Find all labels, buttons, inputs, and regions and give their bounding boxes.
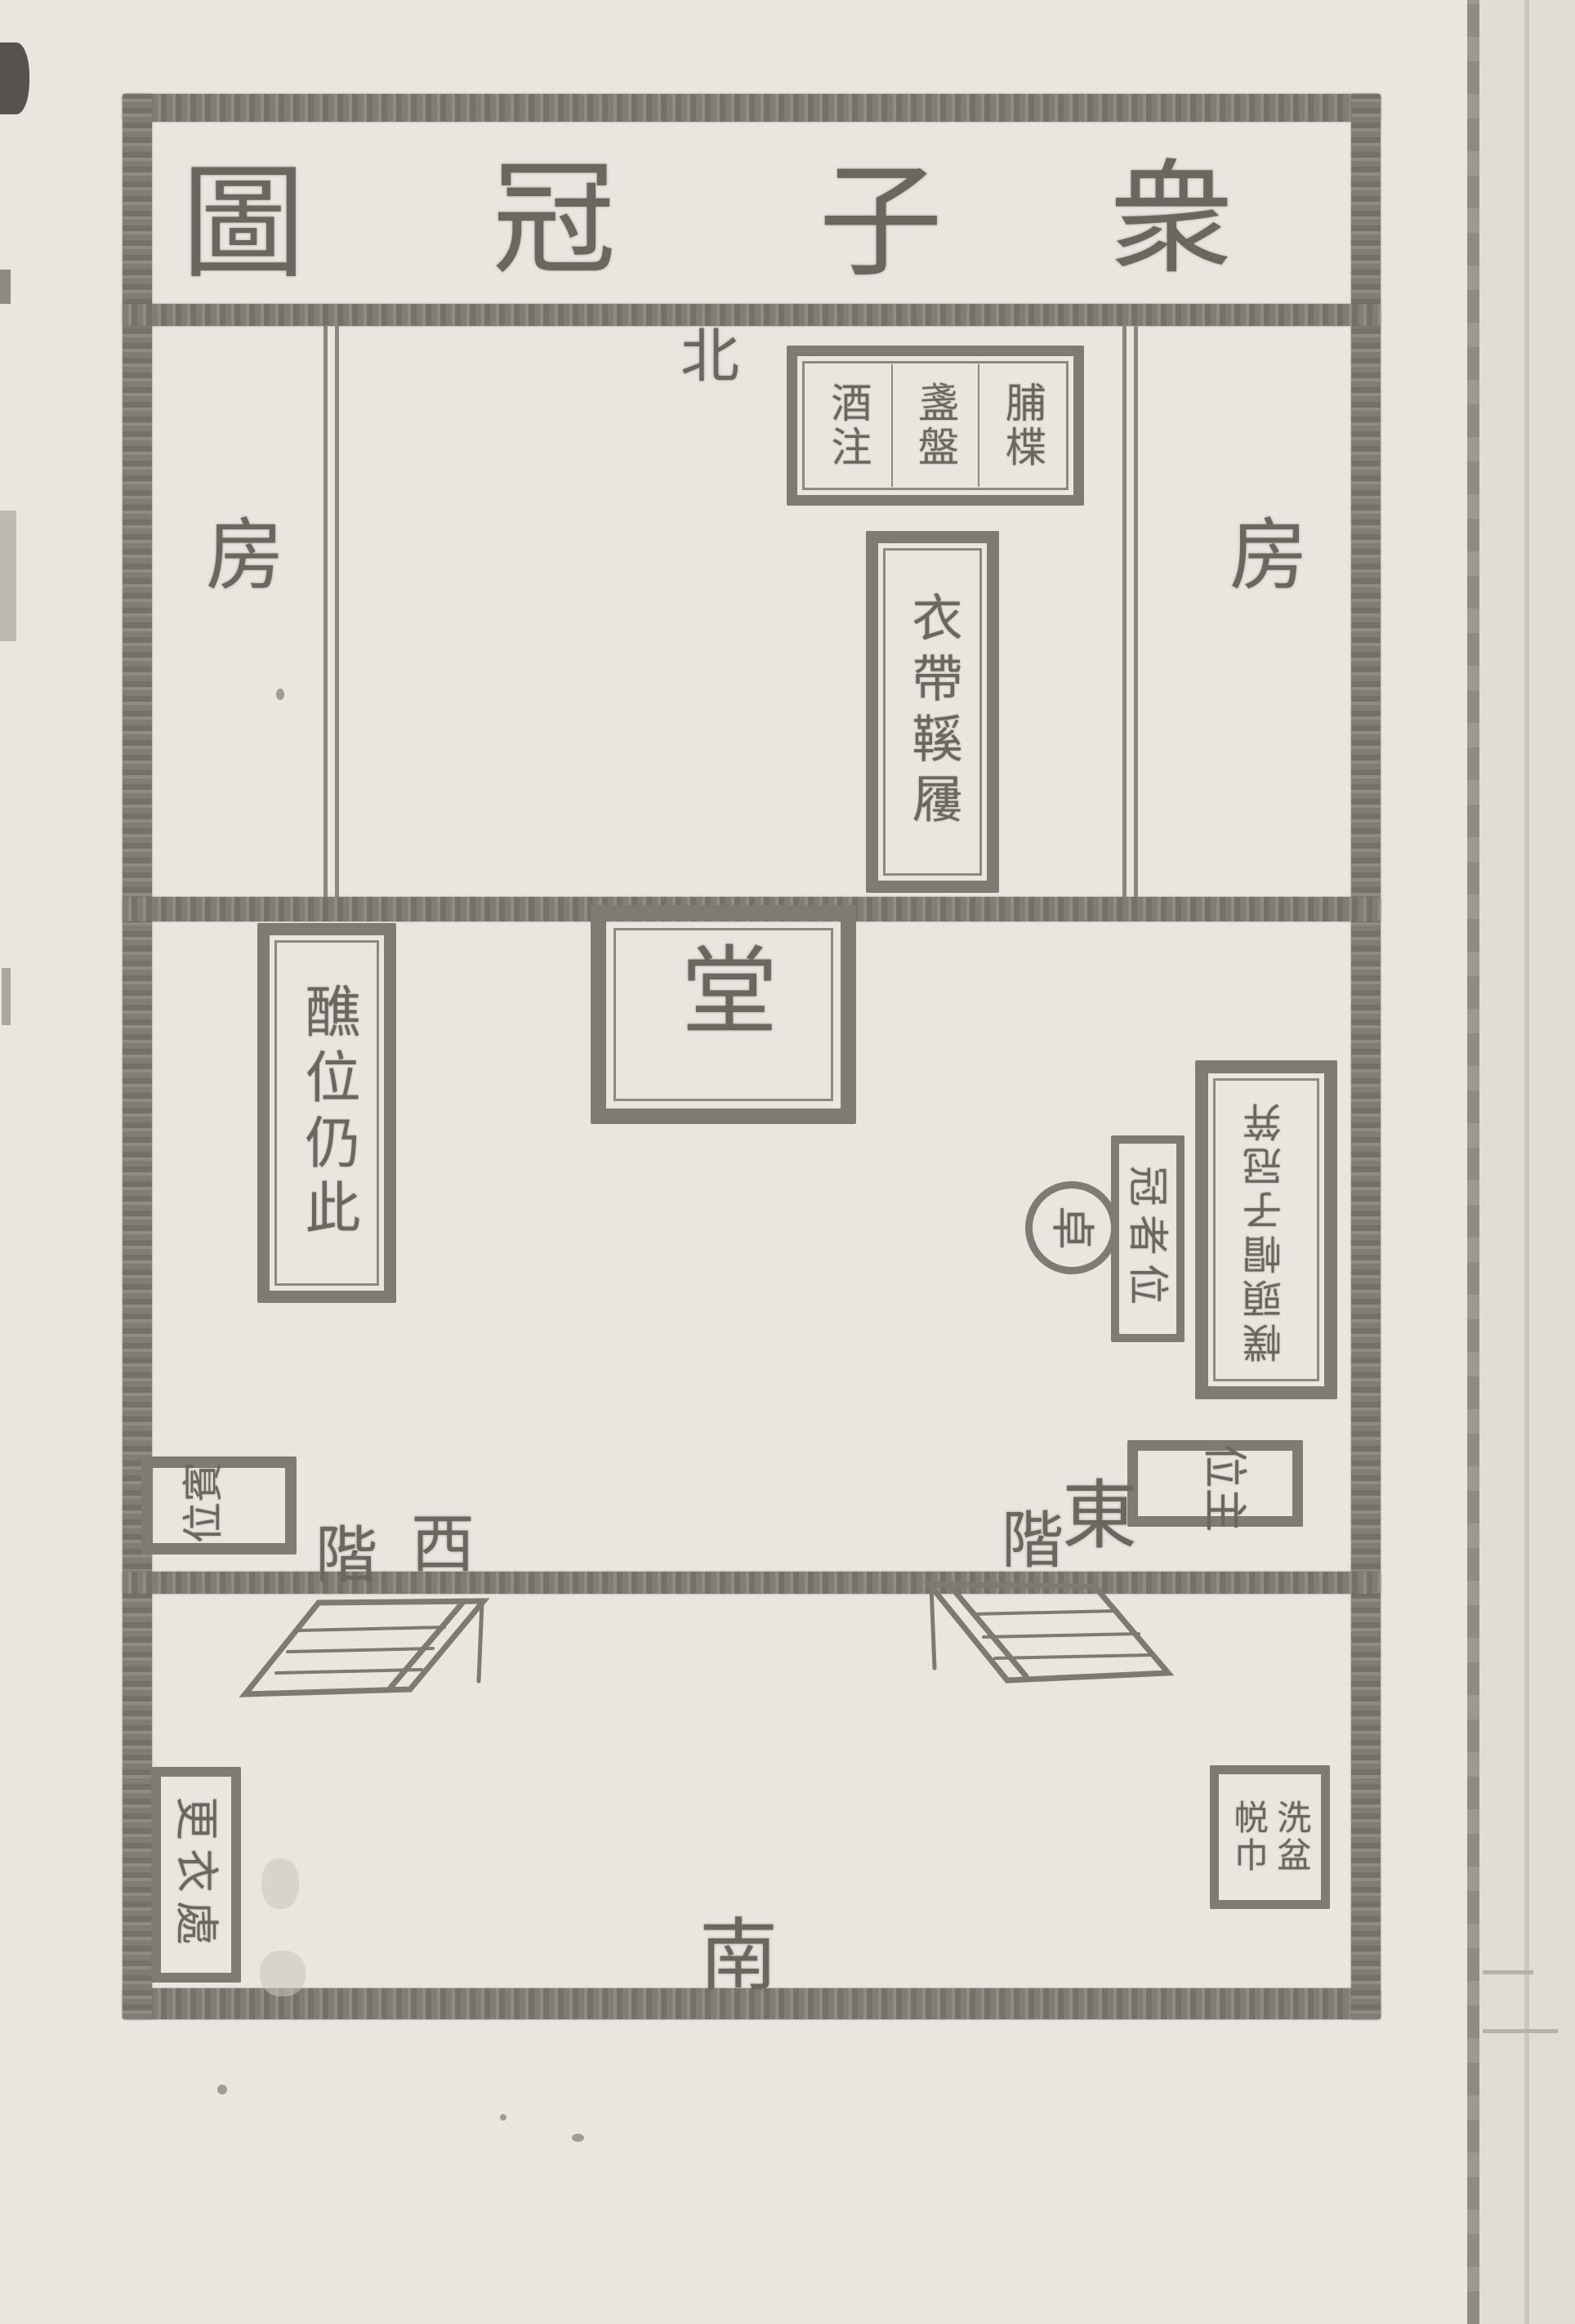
washing-col-shuijin: 帨巾 — [1227, 1782, 1270, 1892]
left-edge-mark-1 — [0, 270, 11, 304]
left-edge-mark-3 — [2, 968, 11, 1025]
page-edge-line — [1524, 0, 1529, 2324]
speck-4 — [276, 689, 284, 700]
left-edge-ink-blob — [0, 42, 29, 114]
left-edge-mark-2 — [0, 511, 16, 641]
page-edge-mark-2 — [1483, 2029, 1558, 2033]
west-stairs-drawing — [245, 1601, 484, 1694]
south-label: 南 — [699, 1916, 778, 1995]
speck-2 — [500, 2114, 506, 2121]
changing-place-box: 更衣處 — [151, 1767, 241, 1983]
east-stairs-drawing — [930, 1585, 1168, 1680]
smudge-1 — [261, 1858, 299, 1909]
washing-col-xipen: 洗盆 — [1270, 1782, 1314, 1892]
changing-place-label: 更衣處 — [174, 1796, 218, 1953]
speck-3 — [572, 2134, 584, 2142]
scanned-page: 圖 冠 子 衆 北 房 房 脯楪 盞盤 酒注 衣帶鞵屨 堂 醮位仍此 幞頭帽子冠… — [0, 0, 1575, 2324]
page-fold-line — [1467, 0, 1479, 2324]
page-edge-mark-1 — [1483, 1970, 1533, 1974]
speck-1 — [217, 2085, 227, 2094]
washing-box: 洗盆 帨巾 — [1210, 1765, 1330, 1909]
smudge-2 — [260, 1951, 306, 1996]
